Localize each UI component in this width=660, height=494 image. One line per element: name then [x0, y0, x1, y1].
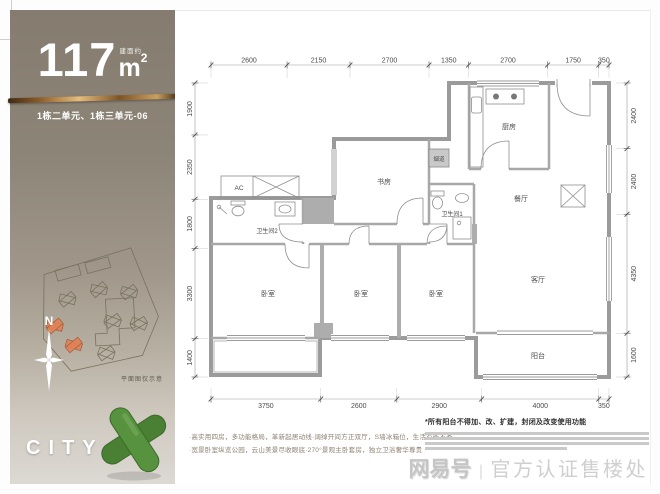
dim-label: 2900 — [431, 403, 447, 410]
fixtures-layer — [217, 87, 585, 239]
dim-label: 2700 — [500, 58, 516, 65]
siteplan-caption: 平面图仅示意 — [121, 374, 163, 383]
room-label: 餐厅 — [514, 194, 528, 203]
dim-label: 2150 — [311, 58, 327, 65]
building-outline — [89, 281, 109, 299]
building-highlighted — [64, 337, 84, 354]
dim-label: 1900 — [187, 101, 194, 117]
room-label: AC — [234, 185, 243, 192]
compass-north-label: N — [34, 314, 64, 328]
dim-label: 1750 — [565, 58, 581, 65]
dim-label: 4350 — [631, 266, 638, 282]
watermark-logo: 网易号 — [408, 458, 471, 481]
gold-ribbon — [8, 94, 177, 104]
area-headline: 117建面约m2 — [10, 34, 175, 86]
dim-label: 2400 — [631, 174, 638, 190]
room-labels-layer: 厨房餐厅书房卫生间1卫生间2烟道AC卧室卧室卧室客厅阳台 — [234, 122, 545, 360]
fine-print-line — [425, 432, 649, 435]
fine-print-line — [425, 447, 567, 450]
watermark: 网易号 | 官方认证售楼处 — [408, 453, 648, 483]
building-outline — [97, 345, 116, 361]
disclaimer-block: *所有阳台不得加、改、扩建，封闭及改变使用功能 — [425, 417, 649, 452]
dim-label: 1350 — [441, 58, 457, 65]
area-prefix: 建面约 — [119, 45, 142, 55]
dim-label: 1600 — [631, 347, 638, 363]
dim-label: 2350 — [187, 159, 194, 175]
watermark-text: 官方认证售楼处 — [491, 459, 649, 481]
dim-label: 2700 — [382, 58, 398, 65]
watermark-separator: | — [479, 463, 483, 480]
floorplan-page: 117建面约m2 1栋二单元、1栋三单元-06 平面图仅示意 N — [0, 0, 660, 494]
fine-print-line — [425, 442, 649, 445]
sidebar: 117建面约m2 1栋二单元、1栋三单元-06 平面图仅示意 N — [10, 10, 175, 484]
dim-label: 4000 — [532, 403, 548, 410]
room-label: 卫生间1 — [441, 210, 463, 218]
dim-label: 3300 — [187, 286, 194, 302]
feature-line-1: ·高实用四房，多功能格局，革新起居动线·阔绰开间方正双厅，S墙冰箱位，生活有条不… — [189, 431, 453, 444]
room-label: 卧室 — [429, 289, 443, 298]
room-label: 厨房 — [502, 122, 516, 131]
cooktop — [486, 89, 524, 104]
unit-number: 1栋二单元、1栋三单元-06 — [10, 109, 175, 122]
kitchen-sink — [472, 97, 482, 113]
room-label: 烟道 — [433, 155, 445, 163]
dim-label: 1800 — [187, 216, 194, 232]
room-label: 卧室 — [354, 289, 368, 298]
area-unit: 建面约m2 — [118, 51, 147, 83]
ac-platform — [221, 176, 299, 198]
room-label: 书房 — [377, 177, 391, 186]
room-label: 客厅 — [531, 275, 545, 284]
building-outline — [57, 291, 77, 308]
dimensions-layer: 2600215027001350270017503503750260029004… — [187, 58, 638, 411]
dim-label: 2400 — [631, 108, 638, 124]
fridge-nook — [561, 185, 585, 207]
building-outline — [103, 313, 122, 329]
area-value: 117 — [38, 33, 117, 86]
doors-layer — [279, 83, 590, 268]
dim-label: 3750 — [258, 403, 274, 410]
compass: N — [34, 314, 64, 396]
dim-label: 350 — [598, 58, 610, 65]
fine-print-line — [425, 437, 649, 440]
room-label: 阳台 — [531, 351, 545, 360]
windows-layer — [227, 79, 613, 381]
dim-label: 1400 — [187, 350, 194, 366]
dim-label: 2600 — [351, 403, 367, 410]
floorplan-panel: 2600215027001350270017503503750260029004… — [175, 10, 651, 485]
fine-print-lines — [425, 432, 649, 450]
x-sculpture-icon — [92, 396, 176, 484]
kitchen-counter — [470, 87, 483, 167]
room-label: 卧室 — [261, 289, 275, 298]
dim-label: 2600 — [241, 58, 257, 65]
floorplan-svg: 2600215027001350270017503503750260029004… — [181, 51, 643, 417]
dim-label: 350 — [598, 403, 610, 410]
balcony-note: *所有阳台不得加、改、扩建，封闭及改变使用功能 — [425, 417, 649, 427]
room-label: 卫生间2 — [256, 227, 278, 235]
bath2-fixtures — [217, 201, 295, 216]
building-outline — [130, 316, 148, 331]
area-unit-letter: m — [118, 54, 140, 82]
compass-star-icon — [34, 329, 64, 391]
